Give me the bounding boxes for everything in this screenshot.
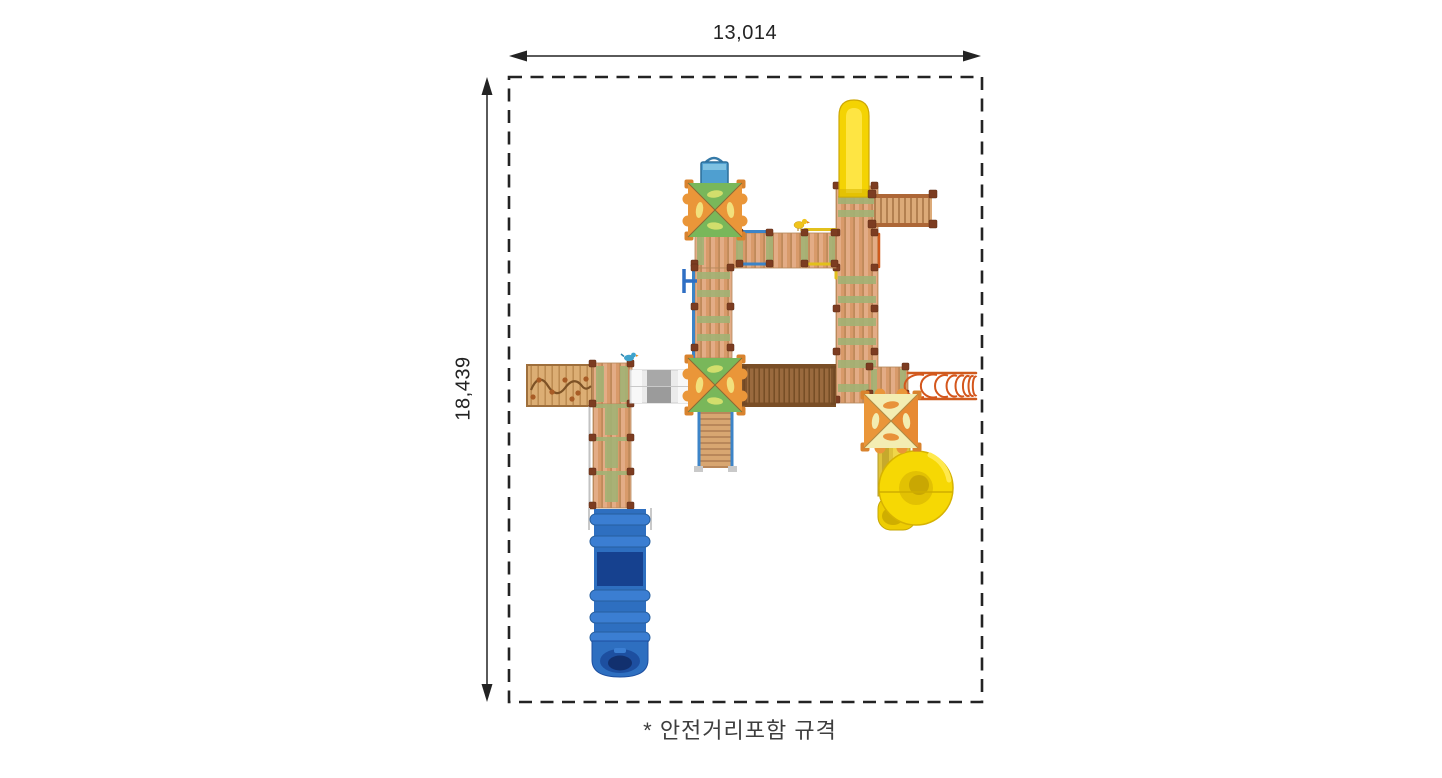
tower-roof-middle [683,355,748,416]
playground-top-view [527,100,977,677]
diagram-svg [0,0,1442,778]
ring-column-left [684,264,734,358]
left-tower-column [589,360,634,509]
spec-caption: * 안전거리포함 규격 [505,713,975,745]
diagram-canvas: 13,014 18,439 * 안전거리포함 규격 [0,0,1442,778]
climbing-wall [527,365,592,406]
height-dimension-label: 18,439 [453,346,476,432]
suspension-bridge [742,364,836,407]
crawl-tunnel [630,370,690,403]
yellow-spiral-slide [878,443,953,530]
height-dimension-arrow [482,77,493,702]
tower-roof-top [683,180,748,241]
tower-roof-right [861,389,922,454]
stairs-ramp [694,412,737,472]
bird-icon-blue [621,353,639,362]
width-dimension-label: 13,014 [690,22,800,45]
width-dimension-arrow [509,51,981,62]
yellow-straight-slide [839,100,869,197]
blue-tube-slide [589,508,651,677]
rung-bridge [868,190,937,228]
